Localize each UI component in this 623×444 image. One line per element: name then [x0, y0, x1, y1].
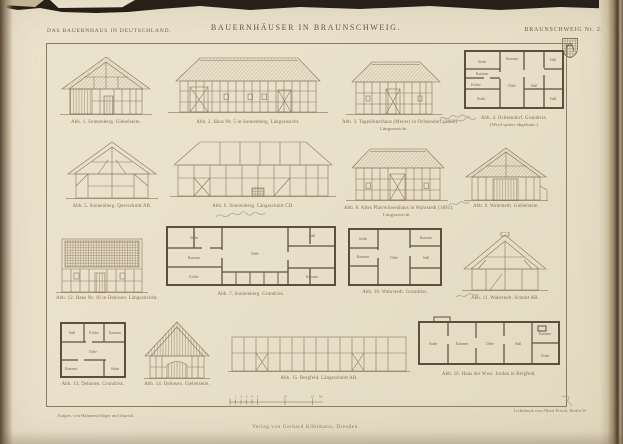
abb4-floor-plan-drawing: Stube Kammer Küche Stube Kammer Diele St… [462, 48, 566, 114]
room-label: Diele [486, 342, 494, 346]
abb10-caption: Abb. 10. Wahrstedt. Grundriss. [346, 290, 444, 296]
room-label: Kammer [306, 275, 319, 279]
figure-abb1: Abb. 1. Sonnenberg. Giebelseite. [58, 56, 154, 126]
plate-title: BAUERNHÄUSER IN BRAUNSCHWEIG. [46, 23, 566, 32]
room-label: Stall [550, 58, 557, 62]
room-label: Stall [423, 256, 430, 260]
room-label: Kammer [188, 256, 201, 260]
room-label: Diele [390, 256, 398, 260]
room-label: Stube [359, 237, 368, 241]
room-label: Kammer [476, 72, 489, 76]
room-label: Stall [531, 84, 538, 88]
room-label: Küche [89, 331, 99, 335]
abb1-gable-elevation-drawing [58, 56, 154, 118]
abb2-caption: Abb. 2. Haus Nr. 5 in Sonnenberg. Längsa… [160, 120, 336, 126]
caption-text: Abb. 14. Dehnsen. Giebelseite. [144, 382, 210, 387]
abb8-long-elevation-drawing [344, 146, 450, 204]
figure-abb13: Stall Küche Kammer Diele Stube Kammer Ab… [58, 320, 128, 388]
scale-tick-label: 3 [246, 395, 248, 399]
scanned-plate-page: DAS BAUERNHAUS IN DEUTSCHLAND. BAUERNHÄU… [0, 0, 623, 444]
figure-abb12: Abb. 12. Haus Nr. 18 in Dehnsen. Längsan… [56, 236, 148, 302]
figure-abb5: Abb. 5. Sonnenberg. Querschnitt AB. [64, 140, 160, 210]
pencil-annotation [447, 198, 471, 209]
room-label: Kammer [65, 367, 78, 371]
plate-number: BRAUNSCHWEIG Nr. 2. [524, 27, 603, 33]
abb16-caption: Abb. 16. Haus der Wwe. Jordan in Bergfel… [416, 372, 562, 378]
figure-abb16: Stube Kammer Diele Stall Kammer Stube Ab… [416, 314, 562, 378]
abb5-caption: Abb. 5. Sonnenberg. Querschnitt AB. [64, 204, 160, 210]
figure-abb3: Abb. 3. Tagelöhnerhaus (Meyer) in Ochsen… [342, 58, 446, 132]
pencil-annotation [214, 209, 268, 222]
abb10-floor-plan-drawing: Stube Kammer Diele Stall Kammer [346, 226, 444, 288]
room-label: Kammer [539, 332, 552, 336]
caption-text-line2: Längsansicht. [342, 126, 446, 132]
caption-text: Abb. 5. Sonnenberg. Querschnitt AB. [73, 204, 152, 209]
abb9-caption: Abb. 9. Wahrstedt. Giebelseite. [462, 204, 550, 210]
abb1-caption: Abb. 1. Sonnenberg. Giebelseite. [58, 120, 154, 126]
room-label: Stube [111, 367, 120, 371]
caption-text: Abb. 11. Wahrstedt. Schnitt AB. [471, 296, 539, 301]
scale-tick-label: 5 [257, 395, 259, 399]
abb16-floor-plan-drawing: Stube Kammer Diele Stall Kammer Stube [416, 314, 562, 370]
room-label: Stube [429, 342, 438, 346]
abb9-gable-elevation-drawing [462, 146, 550, 202]
scale-bar: 1 2 3 4 5 10 15 M. [228, 394, 328, 406]
caption-text: Abb. 7. Sonnenberg. Grundriss. [218, 292, 285, 297]
caption-text: Abb. 13. Dehnsen. Grundriss. [62, 382, 125, 387]
abb7-floor-plan-drawing: Stube Kammer Küche Diele Stall Kammer [164, 224, 338, 290]
figure-abb2: Abb. 2. Haus Nr. 5 in Sonnenberg. Längsa… [160, 54, 336, 126]
room-label: Kammer [456, 342, 469, 346]
caption-text: Abb. 15. Bergfeld. Längsschnitt AB. [280, 376, 357, 381]
abb6-long-section-drawing [168, 138, 338, 202]
figure-abb8: Abb. 8. Altes Pfarrwitwenhaus in Wahrste… [344, 146, 450, 218]
figure-abb15: Abb. 15. Bergfeld. Längsschnitt AB. [226, 328, 412, 382]
room-label: Kammer [420, 236, 433, 240]
page-bottom-shadow [0, 431, 623, 444]
abb3-long-elevation-drawing [342, 58, 446, 118]
publisher-imprint: Verlag von Gerhard Kühtmann, Dresden. [46, 424, 566, 430]
room-label: Kammer [506, 57, 519, 61]
room-label: Küche [189, 275, 199, 279]
figure-abb10: Stube Kammer Diele Stall Kammer Abb. 10.… [346, 226, 444, 296]
room-label: Stube [541, 354, 550, 358]
figure-abb6: Abb. 6. Sonnenberg. Längsschnitt CD. [168, 138, 338, 210]
page-left-gutter-shadow [0, 0, 13, 444]
paper-tear [50, 0, 135, 8]
caption-text: Abb. 12. Haus Nr. 18 in Dehnsen. Längsan… [56, 296, 158, 301]
caption-text: Abb. 2. Haus Nr. 5 in Sonnenberg. Längsa… [196, 120, 299, 125]
scale-unit-label: M. [319, 395, 323, 399]
abb13-floor-plan-drawing: Stall Küche Kammer Diele Stube Kammer [58, 320, 128, 380]
room-label: Stube [478, 60, 487, 64]
room-label: Diele [251, 252, 259, 256]
abb14-gable-elevation-drawing [142, 320, 212, 380]
scale-tick-label: 1 [235, 395, 237, 399]
caption-text: Abb. 8. Altes Pfarrwitwenhaus in Wahrste… [344, 206, 454, 211]
abb12-long-elevation-drawing [56, 236, 148, 294]
abb13-caption: Abb. 13. Dehnsen. Grundriss. [58, 382, 128, 388]
pencil-annotation [452, 114, 478, 127]
scale-tick-label: 10 [283, 395, 287, 399]
abb8-caption: Abb. 8. Altes Pfarrwitwenhaus in Wahrste… [344, 206, 450, 218]
room-label: Stall [309, 234, 316, 238]
abb11-section-drawing [460, 232, 550, 294]
abb14-caption: Abb. 14. Dehnsen. Giebelseite. [142, 382, 212, 388]
room-label: Stall [550, 97, 557, 101]
caption-text: Abb. 10. Wahrstedt. Grundriss. [362, 290, 428, 295]
abb5-cross-section-drawing [64, 140, 160, 202]
room-label: Kammer [357, 255, 370, 259]
room-label: Stube [190, 236, 199, 240]
abb15-long-section-drawing [226, 328, 412, 374]
pencil-annotation [454, 290, 480, 302]
abb7-caption: Abb. 7. Sonnenberg. Grundriss. [164, 292, 338, 298]
abb12-caption: Abb. 12. Haus Nr. 18 in Dehnsen. Längsan… [56, 296, 148, 302]
surveyor-credit: Aufgen. von Hahnenschläger und Jaurich. [57, 413, 134, 418]
abb2-long-elevation-drawing [160, 54, 336, 118]
room-label: Stall [515, 342, 522, 346]
figure-abb7: Stube Kammer Küche Diele Stall Kammer Ab… [164, 224, 338, 298]
room-label: Stube [477, 97, 486, 101]
room-label: Diele [89, 350, 97, 354]
abb3-caption: Abb. 3. Tagelöhnerhaus (Meyer) in Ochsen… [342, 120, 446, 132]
room-label: Küche [471, 83, 481, 87]
scale-tick-label: 15 [311, 395, 315, 399]
caption-text: Abb. 1. Sonnenberg. Giebelseite. [71, 120, 141, 125]
room-label: Diele [508, 84, 516, 88]
figure-abb14: Abb. 14. Dehnsen. Giebelseite. [142, 320, 212, 388]
caption-text-line2: Längsansicht. [344, 212, 450, 218]
page-right-stack-edge [599, 0, 623, 444]
scale-tick-label: 4 [251, 395, 253, 399]
scale-tick-label: 2 [240, 395, 242, 399]
pencil-annotation [559, 393, 577, 409]
abb15-caption: Abb. 15. Bergfeld. Längsschnitt AB. [226, 376, 412, 382]
room-label: Stall [69, 331, 76, 335]
caption-text: Abb. 16. Haus der Wwe. Jordan in Bergfel… [442, 372, 536, 377]
room-label: Kammer [109, 331, 122, 335]
caption-text: Abb. 9. Wahrstedt. Giebelseite. [473, 204, 539, 209]
figure-abb9: Abb. 9. Wahrstedt. Giebelseite. [462, 146, 550, 210]
caption-text: Abb. 4. Ochsendorf. Grundriss. [481, 116, 547, 121]
